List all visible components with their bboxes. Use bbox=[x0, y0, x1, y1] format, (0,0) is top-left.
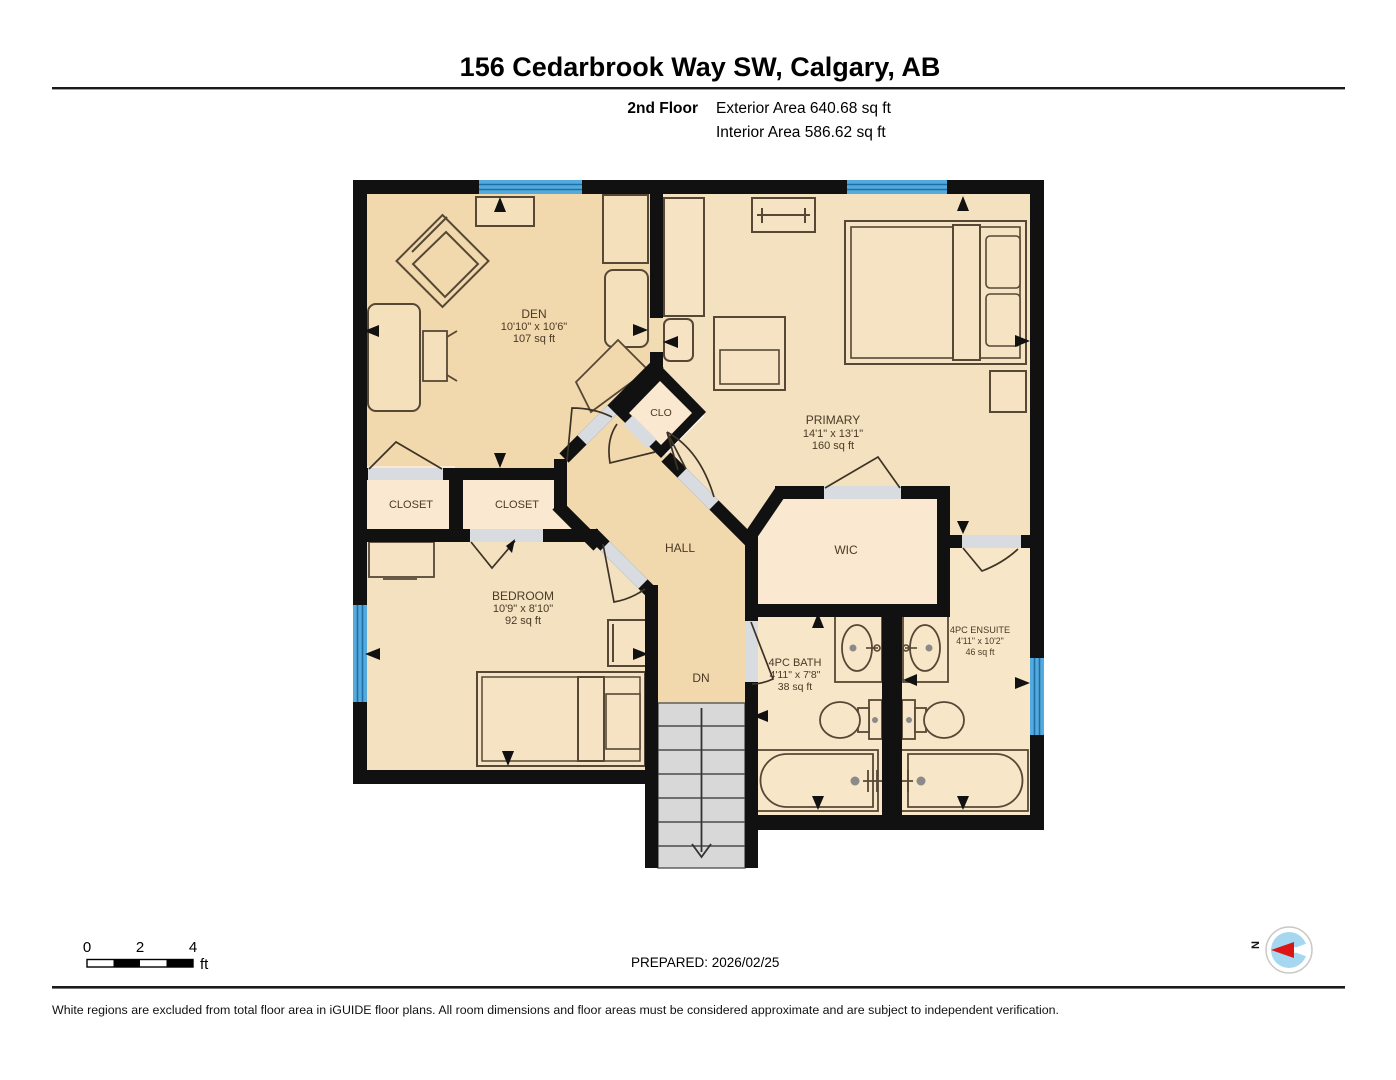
svg-text:107 sq ft: 107 sq ft bbox=[513, 333, 555, 345]
svg-text:WIC: WIC bbox=[834, 543, 858, 557]
svg-text:White regions are excluded fro: White regions are excluded from total fl… bbox=[52, 1003, 1059, 1017]
svg-text:CLOSET: CLOSET bbox=[389, 499, 433, 511]
svg-text:HALL: HALL bbox=[665, 541, 695, 555]
svg-text:DEN: DEN bbox=[521, 307, 546, 321]
svg-text:4PC BATH: 4PC BATH bbox=[769, 657, 822, 669]
svg-text:4'11" x 10'2": 4'11" x 10'2" bbox=[956, 636, 1004, 646]
svg-text:Interior Area 586.62 sq ft: Interior Area 586.62 sq ft bbox=[716, 124, 886, 141]
svg-text:DN: DN bbox=[692, 671, 709, 685]
svg-text:BEDROOM: BEDROOM bbox=[492, 589, 554, 603]
svg-text:38 sq ft: 38 sq ft bbox=[778, 681, 813, 693]
svg-text:4PC ENSUITE: 4PC ENSUITE bbox=[950, 625, 1010, 635]
svg-text:160 sq ft: 160 sq ft bbox=[812, 440, 854, 452]
svg-text:2nd Floor: 2nd Floor bbox=[627, 100, 698, 117]
svg-text:PREPARED: 2026/02/25: PREPARED: 2026/02/25 bbox=[631, 955, 779, 970]
svg-text:PRIMARY: PRIMARY bbox=[806, 413, 860, 427]
svg-text:Exterior Area 640.68 sq ft: Exterior Area 640.68 sq ft bbox=[716, 100, 892, 117]
svg-text:156 Cedarbrook Way SW, Calgary: 156 Cedarbrook Way SW, Calgary, AB bbox=[460, 52, 941, 82]
svg-text:0: 0 bbox=[83, 939, 91, 956]
svg-text:2: 2 bbox=[136, 939, 144, 956]
svg-text:92 sq ft: 92 sq ft bbox=[505, 615, 541, 627]
svg-text:14'1" x 13'1": 14'1" x 13'1" bbox=[803, 428, 863, 440]
svg-text:10'10" x 10'6": 10'10" x 10'6" bbox=[501, 321, 568, 333]
svg-text:46 sq ft: 46 sq ft bbox=[966, 647, 995, 657]
svg-text:4: 4 bbox=[189, 939, 197, 956]
svg-text:4'11" x 7'8": 4'11" x 7'8" bbox=[770, 669, 821, 681]
svg-text:N: N bbox=[1250, 941, 1262, 949]
svg-text:CLOSET: CLOSET bbox=[495, 499, 539, 511]
svg-text:CLO: CLO bbox=[650, 407, 672, 419]
svg-text:10'9" x 8'10": 10'9" x 8'10" bbox=[493, 603, 553, 615]
svg-text:ft: ft bbox=[200, 956, 209, 973]
